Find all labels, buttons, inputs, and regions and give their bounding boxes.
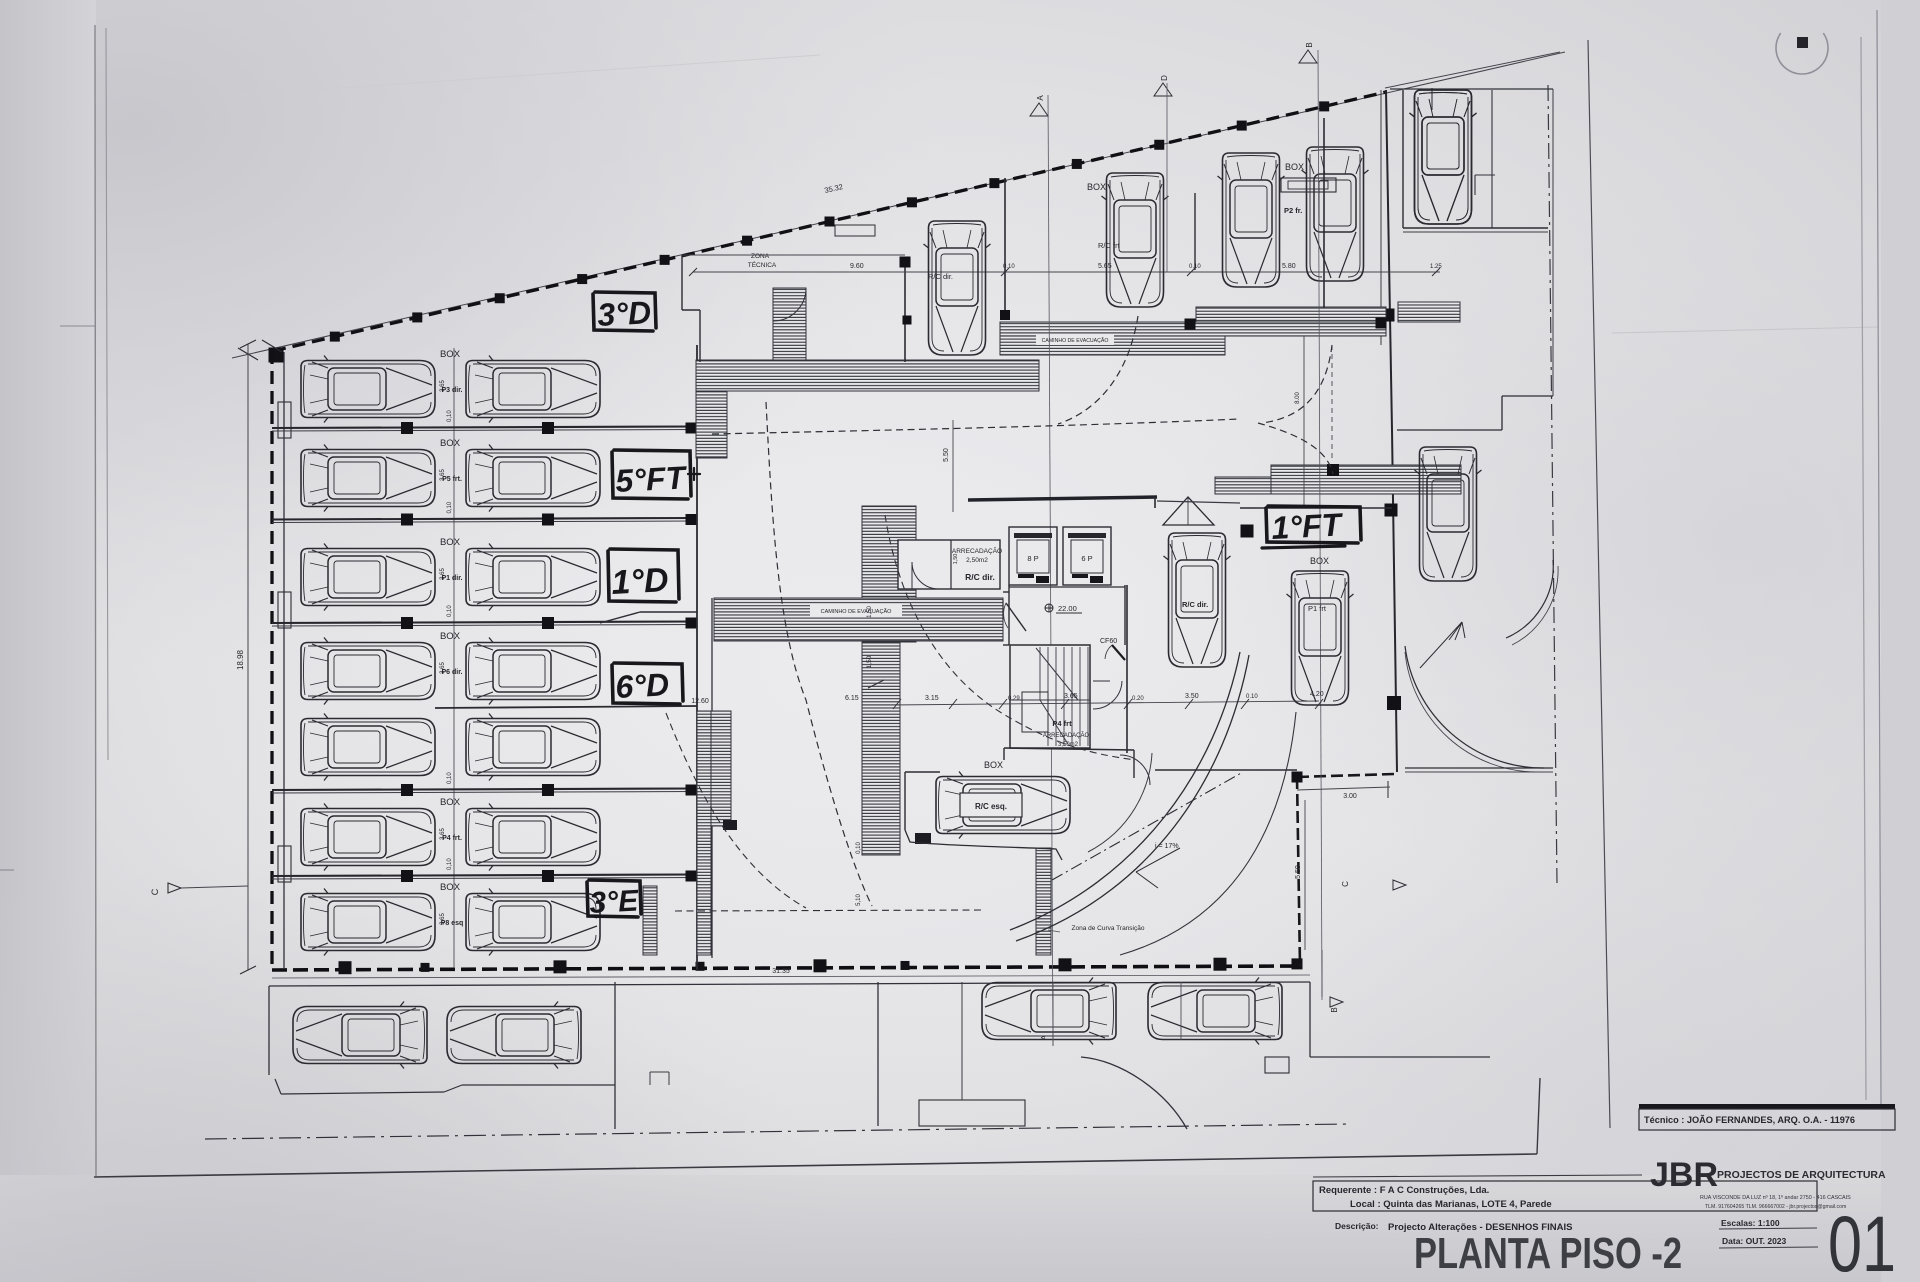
svg-text:0,10: 0,10 (447, 501, 453, 513)
svg-text:B: B (1330, 1007, 1339, 1012)
svg-text:0.10: 0.10 (1003, 264, 1015, 270)
svg-text:BOX: BOX (1087, 182, 1106, 192)
svg-text:BOX: BOX (440, 537, 461, 548)
svg-text:P2 fr.: P2 fr. (1284, 206, 1302, 215)
svg-text:3.65: 3.65 (440, 568, 446, 580)
svg-text:6°D: 6°D (614, 666, 670, 705)
svg-text:3°D: 3°D (596, 294, 652, 333)
svg-text:A: A (1041, 1035, 1048, 1040)
svg-text:0,10: 0,10 (447, 858, 453, 870)
svg-text:5.50: 5.50 (1295, 865, 1302, 879)
svg-text:3.65: 3.65 (1064, 693, 1078, 700)
svg-text:CAMINHO DE EVACUAÇÃO: CAMINHO DE EVACUAÇÃO (821, 608, 893, 615)
svg-text:1°FT: 1°FT (1270, 506, 1344, 546)
svg-text:0.10: 0.10 (1246, 694, 1258, 700)
svg-text:ARRECADAÇÃO: ARRECADAÇÃO (952, 546, 1002, 555)
svg-text:5.50: 5.50 (943, 448, 950, 462)
svg-text:ZONA: ZONA (751, 253, 770, 260)
svg-text:Escalas: 1:100: Escalas: 1:100 (1721, 1218, 1780, 1228)
svg-text:01: 01 (1828, 1199, 1896, 1282)
svg-text:5°FT: 5°FT (614, 459, 688, 499)
svg-text:P1 frt: P1 frt (1308, 604, 1327, 613)
svg-text:R/C dir.: R/C dir. (928, 272, 953, 281)
svg-text:Data: OUT. 2023: Data: OUT. 2023 (1722, 1236, 1787, 1246)
svg-text:6 P: 6 P (1081, 554, 1092, 563)
svg-text:0.29: 0.29 (1008, 696, 1020, 702)
svg-text:P4 frt: P4 frt (1052, 719, 1072, 728)
svg-text:31.35: 31.35 (772, 968, 790, 975)
svg-text:1°D: 1°D (610, 561, 669, 602)
svg-text:R/C frt: R/C frt (1098, 241, 1121, 250)
svg-text:0,10: 0,10 (856, 842, 862, 854)
svg-text:PLANTA PISO -2: PLANTA PISO -2 (1414, 1229, 1682, 1278)
svg-text:3.15: 3.15 (925, 695, 939, 702)
svg-text:BOX: BOX (440, 631, 461, 642)
svg-text:3.65: 3.65 (440, 469, 446, 481)
svg-text:3.50: 3.50 (1185, 693, 1199, 700)
svg-text:8 P: 8 P (1027, 554, 1038, 563)
svg-text:0,10: 0,10 (447, 605, 453, 617)
svg-text:5,10: 5,10 (856, 894, 862, 906)
svg-text:CF60: CF60 (1100, 638, 1117, 645)
svg-text:5.80: 5.80 (1282, 263, 1296, 270)
svg-text:BOX: BOX (440, 797, 461, 808)
svg-text:0,10: 0,10 (447, 410, 453, 422)
svg-text:BOX: BOX (984, 760, 1003, 770)
svg-text:R/C esq.: R/C esq. (975, 802, 1007, 811)
svg-text:1,50: 1,50 (867, 606, 873, 618)
svg-text:22.00: 22.00 (1058, 604, 1077, 613)
svg-text:18.98: 18.98 (236, 649, 245, 670)
svg-text:0.20: 0.20 (1132, 696, 1144, 702)
svg-text:2,50m2: 2,50m2 (966, 557, 988, 564)
svg-text:CAMINHO DE EVACUAÇÃO: CAMINHO DE EVACUAÇÃO (1042, 337, 1109, 344)
svg-text:1.25: 1.25 (1430, 264, 1442, 270)
svg-text:3.65: 3.65 (440, 828, 446, 840)
svg-text:3.65: 3.65 (440, 380, 446, 392)
svg-text:Requerente : F A C Construçõe: Requerente : F A C Construções, Lda. (1319, 1185, 1489, 1196)
svg-text:Zona de Curva Transição: Zona de Curva Transição (1072, 925, 1145, 932)
svg-text:3.65: 3.65 (440, 913, 446, 925)
svg-text:Descrição:: Descrição: (1335, 1221, 1379, 1231)
svg-text:0.10: 0.10 (1189, 264, 1201, 270)
svg-text:A: A (1036, 95, 1045, 101)
svg-text:BOX: BOX (440, 349, 461, 360)
svg-text:Local : Quinta das Marianas, L: Local : Quinta das Marianas, LOTE 4, Par… (1350, 1199, 1552, 1210)
svg-text:9.60: 9.60 (850, 263, 864, 270)
svg-text:TÉCNICA: TÉCNICA (748, 260, 777, 269)
svg-text:3.65: 3.65 (440, 662, 446, 674)
svg-text:Técnico : JOÃO FERNANDES, ARQ.: Técnico : JOÃO FERNANDES, ARQ. O.A. - 11… (1644, 1115, 1855, 1125)
svg-text:D: D (1160, 75, 1169, 81)
svg-text:BOX: BOX (1310, 556, 1329, 566)
svg-text:8.00: 8.00 (1295, 392, 1301, 404)
svg-text:JBR: JBR (1650, 1156, 1718, 1194)
svg-text:TLM. 917604265 TLM. 966667002: TLM. 917604265 TLM. 966667002 - jbr.proj… (1705, 1204, 1846, 1210)
svg-text:1,50: 1,50 (866, 655, 873, 668)
svg-text:12.60: 12.60 (691, 698, 709, 705)
svg-text:6.15: 6.15 (845, 695, 859, 702)
svg-text:3°E: 3°E (589, 884, 640, 920)
svg-text:0,10: 0,10 (447, 772, 453, 784)
svg-text:PROJECTOS DE ARQUITECTURA: PROJECTOS DE ARQUITECTURA (1717, 1169, 1886, 1181)
svg-text:R/C dir.: R/C dir. (965, 572, 995, 582)
svg-text:BOX: BOX (440, 438, 461, 449)
svg-text:R/C dir.: R/C dir. (1182, 600, 1208, 609)
svg-text:1,50: 1,50 (953, 554, 959, 565)
svg-text:i = 17%: i = 17% (1155, 843, 1179, 850)
svg-text:BOX: BOX (440, 882, 461, 893)
svg-text:B: B (1305, 42, 1314, 47)
svg-text:BOX: BOX (1285, 162, 1304, 172)
svg-text:C: C (1341, 881, 1350, 887)
svg-text:C: C (150, 888, 160, 895)
svg-text:3.00: 3.00 (1343, 793, 1357, 800)
